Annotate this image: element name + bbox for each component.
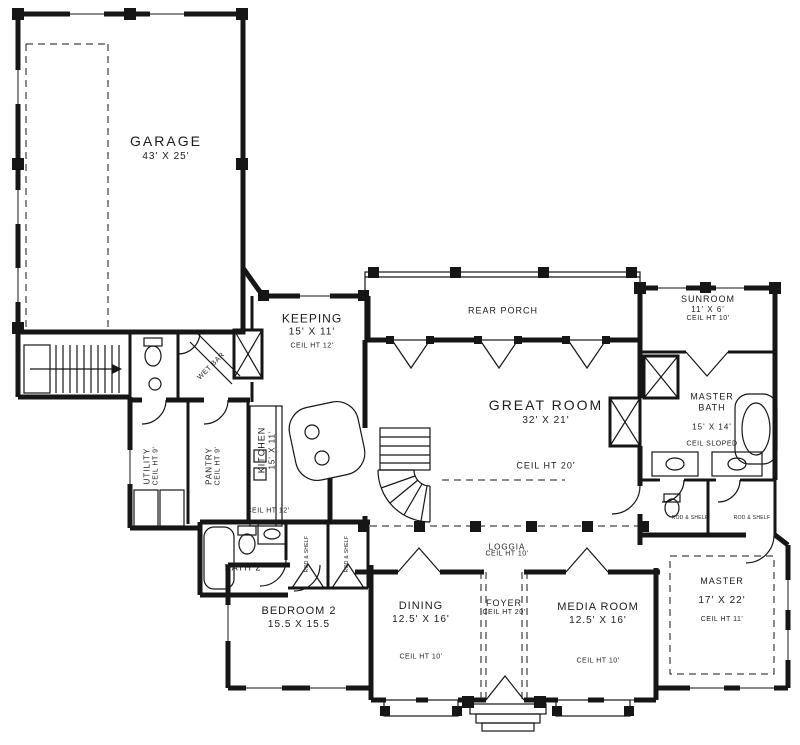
room-dims: 15' X 11' [282,326,342,339]
foyer-front [462,676,546,731]
room-dims: 15.5 X 15.5 [261,619,336,632]
room-name: MASTER [698,576,745,587]
double-door-swing [566,548,608,572]
island-sink [305,425,319,439]
room-dims: 32' X 21' [489,415,603,428]
porch-column [626,267,637,278]
room-ceiling: CEIL HT 11' [698,616,745,625]
loggia-column [526,521,537,532]
island-sink [315,451,329,465]
room-ceiling: CEIL HT 10' [681,315,735,324]
curved-staircase [378,428,430,522]
room-ceiling: CEIL HT 10' [485,551,528,560]
label-dining-ceiling: CEIL HT 10' [399,654,442,663]
room-name: SUNROOM [681,294,735,305]
porch-column [368,267,379,278]
room-dims: 12.5' X 16' [392,614,450,627]
room-ceiling: CEIL HT 12' [282,342,342,351]
media-walls [540,568,656,705]
room-name: BEDROOM 2 [261,605,336,619]
room-name: FOYER [482,598,525,609]
loggia-column [358,521,369,532]
powder-room [130,332,200,400]
room-name: KEEPING [282,311,342,326]
label-foyer: FOYER CEIL HT 20' [482,598,525,618]
entry-column [462,696,474,708]
door-swing [612,486,640,514]
door-swing [178,332,200,354]
rear-porch-structure [365,267,640,340]
double-door-swing [686,352,728,376]
room-name: PANTRY [205,447,215,486]
label-great-room: GREAT ROOM 32' X 21' [489,397,603,427]
label-master: MASTER 17' X 22' CEIL HT 11' [698,576,745,625]
dryer-icon [160,490,184,526]
master-hall-closets [640,480,775,563]
room-dims: 15' X 14' [677,422,747,432]
label-dining: DINING 12.5' X 16' [392,600,450,626]
room-name: UTILITY [143,447,153,486]
door-swing [718,480,740,502]
room-name: MEDIA ROOM [557,601,639,615]
bedroom2-walls [223,565,371,700]
label-loggia: LOGGIA CEIL HT 10' [485,543,528,560]
label-closet-rod-shelf: ROD & SHELF [344,536,350,573]
great-room-walls [365,336,640,545]
kitchen-island [285,398,369,485]
room-name: KITCHEN [256,427,267,474]
toilet-icon [145,346,161,366]
label-bedroom2: BEDROOM 2 15.5 X 15.5 [261,605,336,631]
label-bath2: BATH 2 [225,562,262,573]
double-door-swing [568,340,606,368]
vanity [652,452,698,476]
label-kitchen-ceiling: CEIL HT 12' [246,508,289,517]
loggia-column [582,521,593,532]
room-name: DINING [392,600,450,614]
front-door-swing [486,676,524,700]
label-rear-porch: REAR PORCH [468,305,538,316]
room-ceiling: CEIL SLOPED [677,440,747,449]
label-kitchen: KITCHEN 15' X 11' [256,427,277,474]
label-utility: UTILITY CEIL HT 9' [143,447,162,486]
room-dims: 15' X 11' [268,427,278,474]
label-keeping: KEEPING 15' X 11' CEIL HT 12' [282,311,342,350]
staircase-left [18,332,130,397]
sink-icon [666,458,684,470]
loggia-column [470,521,481,532]
room-name: GARAGE [130,133,202,151]
vanity [258,524,286,544]
label-master-bath: MASTER BATH 15' X 14' CEIL SLOPED [677,391,747,448]
room-ceiling: CEIL HT 9' [153,447,162,486]
sink-icon [728,458,746,470]
double-door-swing [398,548,440,572]
double-door-swing [392,340,430,368]
toilet-tank [144,338,162,346]
loggia-column [638,521,649,532]
room-name: GREAT ROOM [489,397,603,415]
room-dims: 17' X 22' [698,595,745,608]
label-media-room: MEDIA ROOM 12.5' X 16' [557,601,639,627]
double-door-swing [480,340,518,368]
door-swing [746,535,774,563]
sink-icon [264,529,280,539]
washer-icon [134,490,158,526]
label-garage: GARAGE 43' X 25' [130,133,202,163]
label-pantry: PANTRY CEIL HT 9' [205,447,224,486]
label-closet-rod-shelf: ROD & SHELF [734,515,771,521]
label-closet-rod-shelf: ROD & SHELF [672,515,709,521]
label-media-ceiling: CEIL HT 10' [576,658,619,667]
label-closet-rod-shelf: ROD & SHELF [304,536,310,573]
room-dims: 43' X 25' [130,151,202,164]
garage-walls [12,8,263,334]
room-name: MASTER BATH [677,391,747,414]
room-dims: 11' X 6' [681,305,735,315]
room-ceiling: CEIL HT 20' [482,609,525,618]
loggia-column [414,521,425,532]
floorplan-drawing [0,0,800,745]
stair-direction-arrow [112,364,122,374]
toilet-icon [239,534,255,554]
label-sunroom: SUNROOM 11' X 6' CEIL HT 10' [681,294,735,324]
sink-icon [149,378,161,390]
porch-column [450,267,461,278]
label-great-room-ceiling: CEIL HT 20' [516,460,575,471]
floor-plan: GARAGE 43' X 25' KEEPING 15' X 11' CEIL … [0,0,800,745]
room-dims: 12.5' X 16' [557,615,639,628]
porch-column [538,267,549,278]
room-ceiling: CEIL HT 9' [215,447,224,486]
